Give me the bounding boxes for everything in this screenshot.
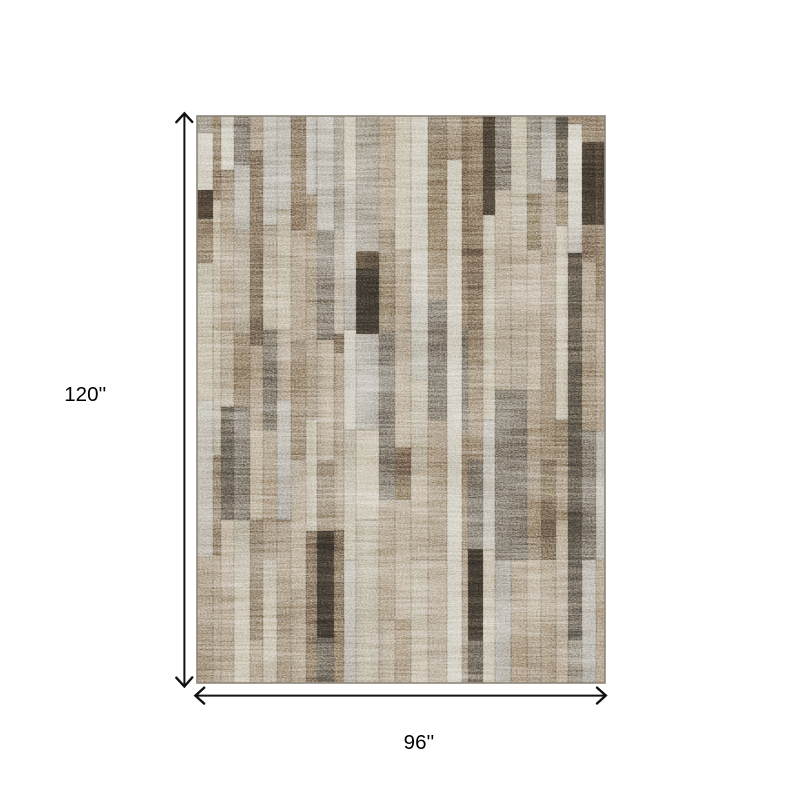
svg-text:96'': 96'' <box>404 731 435 754</box>
svg-text:120'': 120'' <box>64 383 106 406</box>
